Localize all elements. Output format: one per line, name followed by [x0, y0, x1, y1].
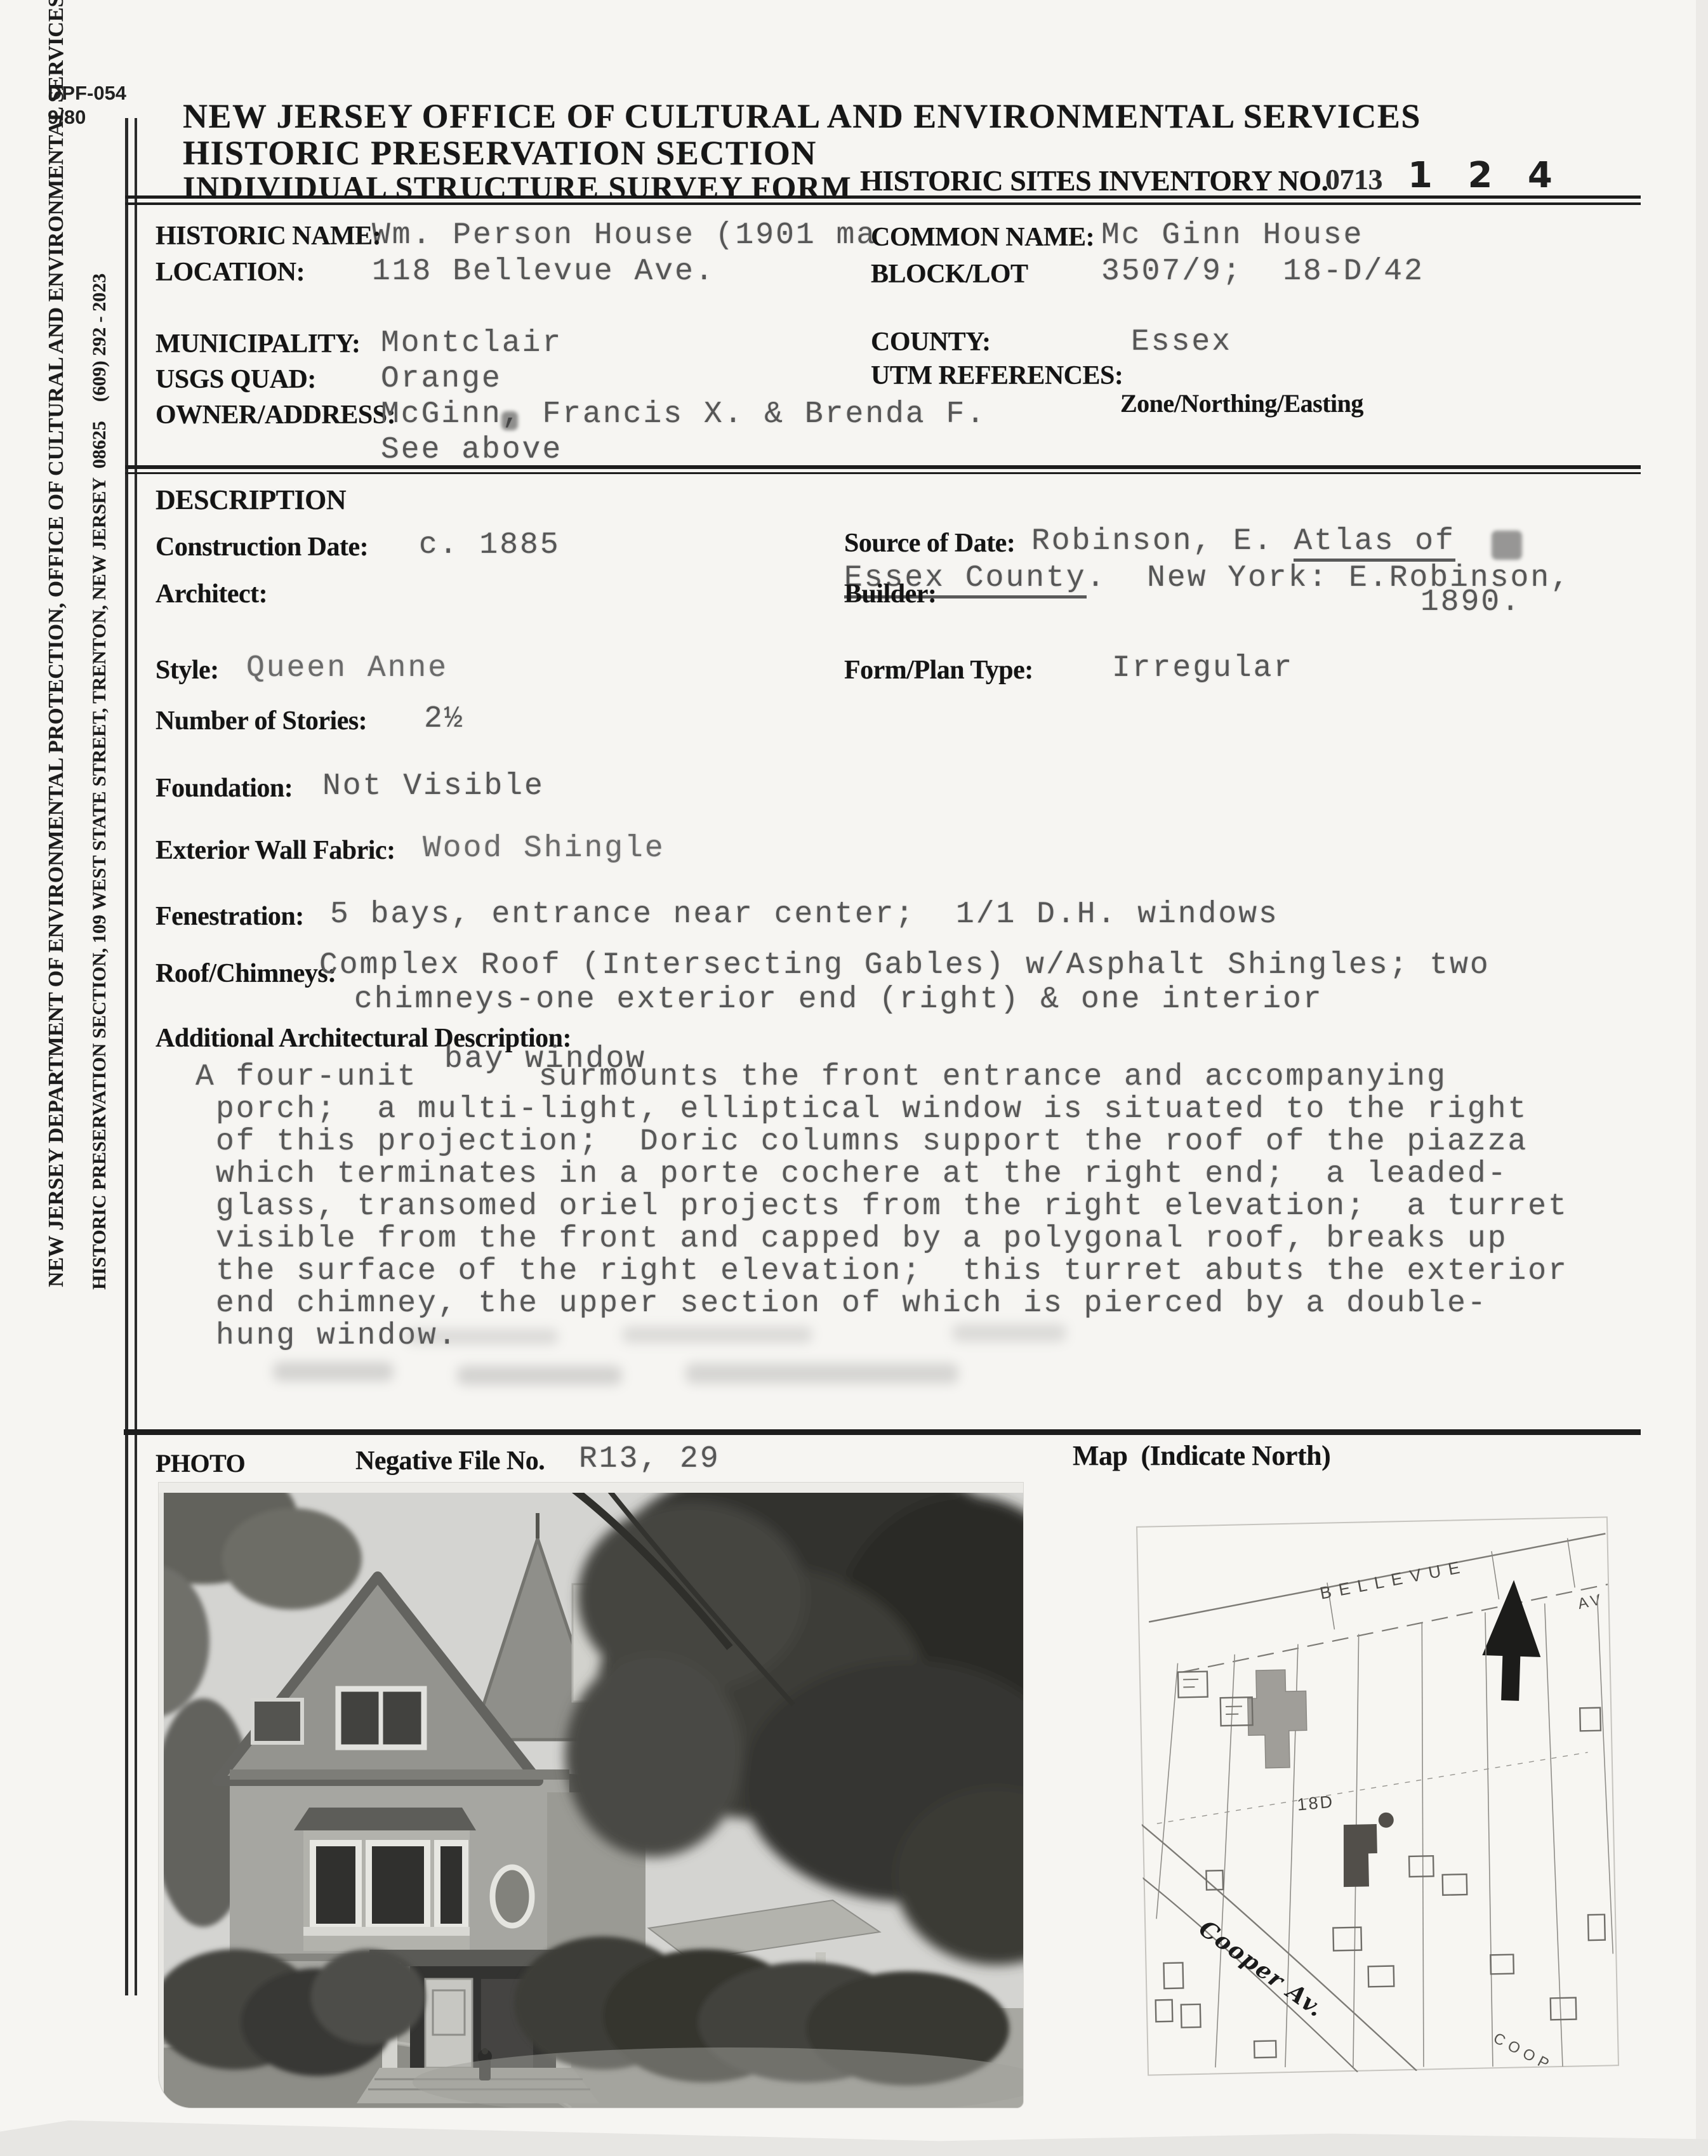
- description-paragraph-line: end chimney, the upper section of which …: [195, 1288, 1568, 1320]
- block-lot-value: 3507/9; 18-D/42: [1101, 255, 1424, 289]
- bay-window-right: [437, 1843, 465, 1927]
- location-value: 118 Bellevue Ave.: [372, 255, 715, 289]
- description-paragraph-line: hung window.: [195, 1320, 1568, 1352]
- source-title-underlined: Atlas of: [1294, 524, 1455, 562]
- wall-fabric-label: Exterior Wall Fabric:: [156, 835, 395, 866]
- negative-file-value: R13, 29: [579, 1442, 720, 1476]
- architect-label: Architect:: [156, 579, 267, 609]
- ink-blot: [1492, 531, 1522, 560]
- location-label: LOCATION:: [156, 257, 305, 288]
- source-of-date-label: Source of Date:: [844, 528, 1015, 559]
- bay-window-center: [369, 1843, 427, 1927]
- erased-text-smudge: [273, 1362, 394, 1381]
- scan-bottom-edge: [0, 2119, 1708, 2156]
- left-border-inner: [135, 118, 137, 1995]
- photo-white-border-top: [159, 1483, 1023, 1493]
- fenestration-label: Fenestration:: [156, 901, 304, 932]
- agency-name: NEW JERSEY OFFICE OF CULTURAL AND ENVIRO…: [183, 96, 1421, 136]
- dormer-window: [253, 1700, 302, 1743]
- erased-text-smudge: [685, 1363, 958, 1384]
- inventory-stamp-number: 1 2 4: [1408, 155, 1564, 196]
- source-part1: Robinson, E.: [1031, 524, 1294, 559]
- foundation-label: Foundation:: [156, 773, 293, 804]
- eave-shadow: [230, 1769, 569, 1780]
- house-photo-illustration: [159, 1483, 1023, 2108]
- erased-text-smudge: [457, 1366, 622, 1385]
- inventory-label: HISTORIC SITES INVENTORY NO.: [860, 164, 1328, 197]
- tax-map: BELLEVUE AV Cooper Av. COOP: [1135, 1516, 1620, 2076]
- erased-text-smudge: [406, 1329, 559, 1344]
- sidebar-agency-line: NEW JERSEY DEPARTMENT OF ENVIRONMENTAL P…: [44, 0, 69, 1287]
- description-paragraph-line: which terminates in a porte cochere at t…: [195, 1158, 1568, 1191]
- source-of-date-line3: 1890.: [1420, 585, 1521, 619]
- construction-date-label: Construction Date:: [156, 532, 368, 562]
- source-of-date-line1: Robinson, E. Atlas of: [1031, 524, 1455, 559]
- description-paragraph-line: glass, transomed oriel projects from the…: [195, 1191, 1568, 1223]
- roof-chimneys-label: Roof/Chimneys:: [156, 958, 336, 989]
- municipality-value: Montclair: [381, 326, 562, 360]
- usgs-quad-label: USGS QUAD:: [156, 364, 316, 395]
- stories-label: Number of Stories:: [156, 706, 367, 736]
- inventory-prefix: 0713: [1325, 162, 1382, 196]
- roof-chimneys-line2: chimneys-one exterior end (right) & one …: [354, 982, 1323, 1017]
- fenestration-value: 5 bays, entrance near center; 1/1 D.H. w…: [330, 897, 1279, 932]
- sidebar-address-line: HISTORIC PRESERVATION SECTION, 109 WEST …: [89, 274, 110, 1290]
- description-heading: DESCRIPTION: [156, 484, 346, 516]
- usgs-quad-value: Orange: [381, 362, 502, 396]
- erased-text-smudge: [952, 1324, 1066, 1342]
- description-paragraph-line: the surface of the right elevation; this…: [195, 1255, 1568, 1288]
- form-title: INDIVIDUAL STRUCTURE SURVEY FORM: [183, 169, 852, 206]
- common-name-value: Mc Ginn House: [1101, 218, 1363, 253]
- form-plan-value: Irregular: [1112, 651, 1294, 685]
- photo-white-border-left: [159, 1493, 164, 2108]
- ink-blot: [501, 411, 518, 430]
- description-rule-bottom: [125, 472, 1641, 474]
- bay-window-left: [313, 1843, 359, 1927]
- bay-sill: [303, 1927, 470, 1936]
- additional-description-paragraph: A four-unit surmounts the front entrance…: [195, 1061, 1568, 1352]
- owner-address-value: McGinn, Francis X. & Brenda F.: [381, 397, 986, 432]
- block-label-18d: 18D: [1296, 1792, 1335, 1814]
- description-paragraph-line: of this projection; Doric columns suppor…: [195, 1126, 1568, 1158]
- photo-label: PHOTO: [156, 1448, 245, 1478]
- historic-name-label: HISTORIC NAME:: [156, 221, 381, 251]
- county-value: Essex: [1131, 325, 1232, 359]
- description-rule-top: [125, 465, 1641, 469]
- description-paragraph-line: porch; a multi-light, elliptical window …: [195, 1094, 1568, 1126]
- form-plan-label: Form/Plan Type:: [844, 655, 1033, 685]
- description-paragraph-line: A four-unit surmounts the front entrance…: [195, 1061, 1568, 1094]
- roof-chimneys-line1: Complex Roof (Intersecting Gables) w/Asp…: [319, 948, 1490, 982]
- map-sheet: [1137, 1517, 1619, 2075]
- survey-form-page: DPF-054 9/80 NEW JERSEY OFFICE OF CULTUR…: [0, 0, 1708, 2156]
- owner-address-label: OWNER/ADDRESS:: [156, 400, 395, 430]
- bay-roof: [294, 1808, 476, 1830]
- foundation-value: Not Visible: [322, 769, 545, 804]
- agency-section: HISTORIC PRESERVATION SECTION: [183, 133, 817, 173]
- municipality-label: MUNICIPALITY:: [156, 329, 361, 359]
- common-name-label: COMMON NAME:: [871, 222, 1094, 253]
- erased-text-smudge: [622, 1326, 812, 1343]
- utm-references-label: UTM REFERENCES:: [871, 360, 1123, 391]
- elliptical-window: [493, 1867, 532, 1926]
- utm-sublabel: Zone/Northing/Easting: [1120, 388, 1363, 418]
- county-label: COUNTY:: [871, 327, 991, 357]
- style-value: Queen Anne: [246, 651, 448, 685]
- photo-section-rule: [124, 1429, 1641, 1435]
- stories-value: 2½: [424, 702, 465, 736]
- owner-address-line2: See above: [381, 433, 562, 467]
- wall-fabric-value: Wood Shingle: [423, 831, 665, 866]
- style-label: Style:: [156, 655, 219, 685]
- left-border-outer: [125, 118, 128, 1995]
- description-paragraph-line: visible from the front and capped by a p…: [195, 1223, 1568, 1255]
- scan-right-edge: [1696, 0, 1708, 2156]
- tax-map-illustration: BELLEVUE AV Cooper Av. COOP: [1135, 1516, 1620, 2076]
- builder-label: Builder:: [844, 579, 936, 609]
- house-photograph: [159, 1483, 1023, 2108]
- block-lot-label: BLOCK/LOT: [871, 259, 1028, 289]
- map-label: Map (Indicate North): [1073, 1439, 1330, 1472]
- construction-date-value: c. 1885: [419, 528, 560, 562]
- historic-name-value: Wm. Person House (1901 ma: [372, 218, 877, 253]
- negative-file-label: Negative File No.: [355, 1446, 545, 1476]
